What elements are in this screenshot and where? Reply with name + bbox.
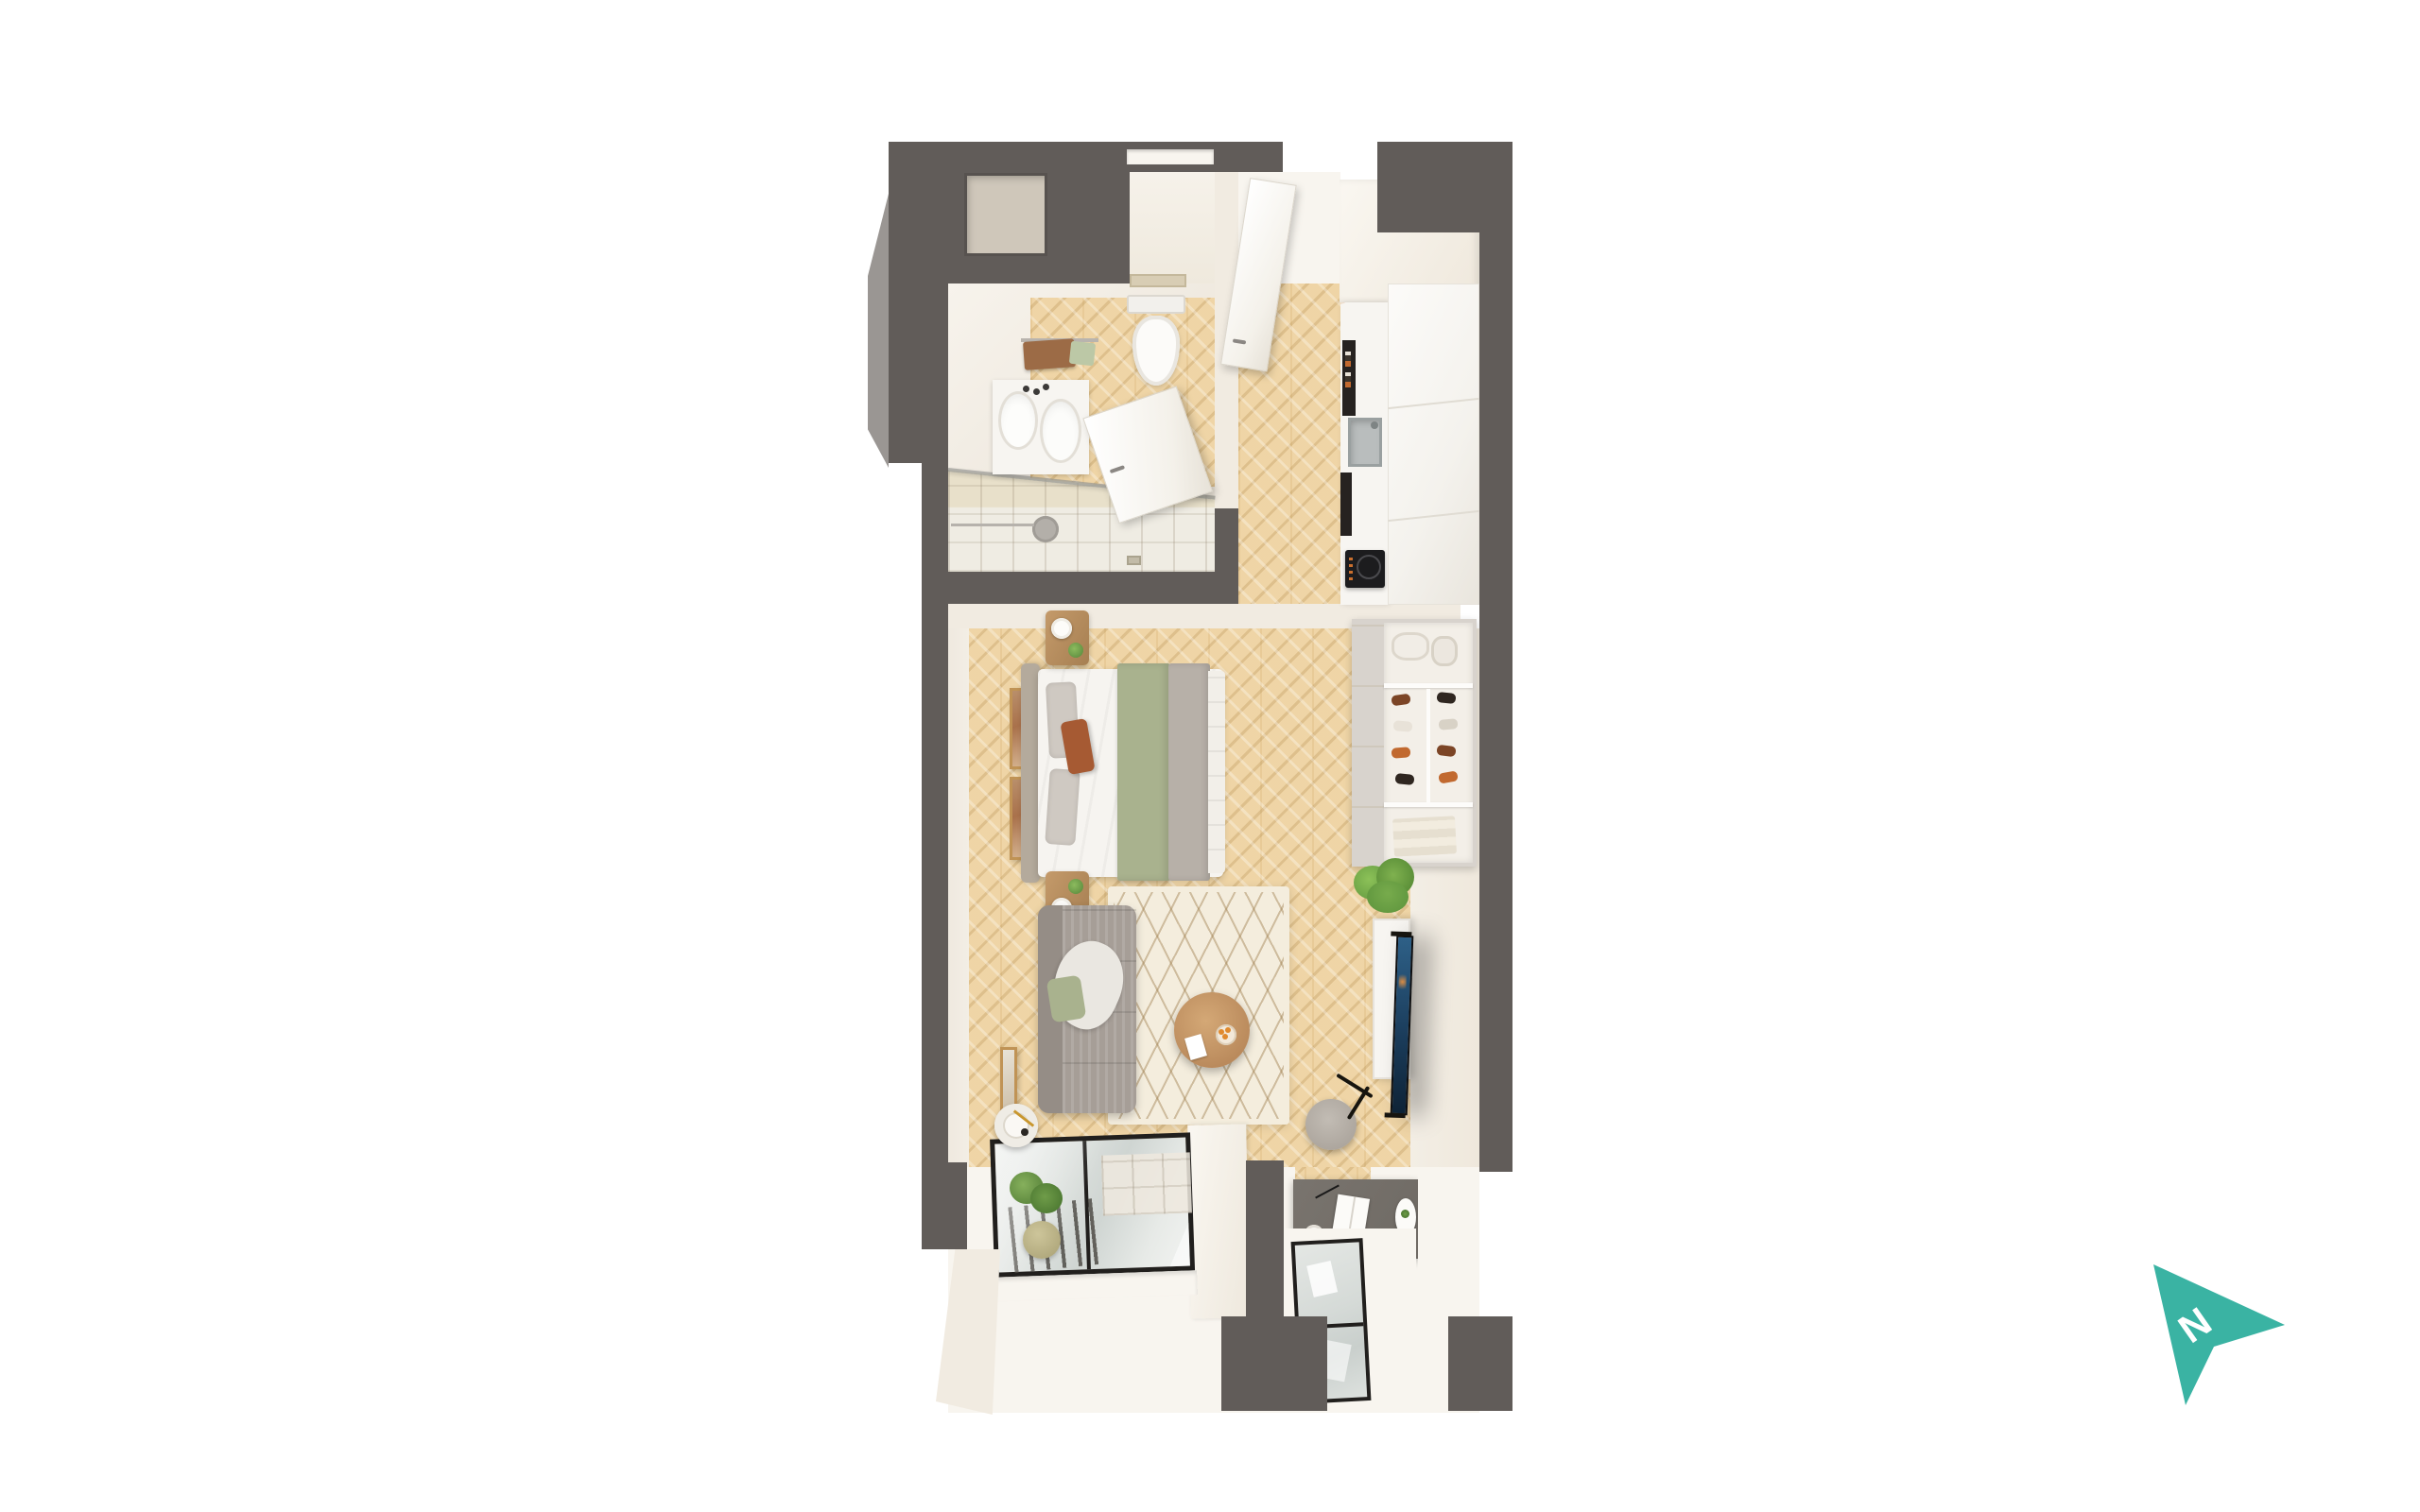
wall [1479,227,1512,1172]
kitchen-tall-cabinets [1388,283,1479,605]
wall [889,142,948,463]
pillow [1045,768,1080,846]
toilet-nook-floor [1130,172,1215,283]
floor-plan-render: N [0,0,2420,1512]
wall-niche [1127,149,1214,164]
wardrobe-shelf [1384,802,1473,807]
brown-towel [1023,338,1076,370]
north-arrow: N [2146,1257,2292,1408]
wall [922,1162,967,1249]
sofa-pillow [1046,974,1087,1022]
wall [922,572,1238,604]
floor-lamp [994,1104,1038,1147]
wall [1448,1316,1512,1411]
wall [1246,1160,1284,1319]
shoe [1436,692,1456,704]
quilted-mattress-end [1208,671,1225,873]
shower-drain [1127,556,1141,565]
extractor-vent [1130,274,1186,287]
wardrobe-drawers [1352,619,1384,867]
shower-rail [951,524,1034,526]
coffee-table [1174,992,1250,1068]
shoe [1439,718,1459,730]
wall-bevel [868,194,889,468]
pen [1315,1185,1340,1199]
bed-headboard [1021,663,1040,883]
shoe [1391,747,1411,758]
green-throw [1117,663,1170,881]
pendant-lamp [1023,1221,1061,1259]
shoe-rack-divider [1426,689,1430,802]
basin-taps [1023,386,1047,395]
wardrobe-shelves [1384,623,1473,863]
shoe [1438,770,1459,783]
small-plant [1068,879,1083,894]
toilet-cistern [1127,295,1185,314]
table-lamp [1051,618,1072,639]
hanging-plant [1010,1172,1066,1225]
induction-hob [1345,550,1385,588]
left-wall-inner-face [948,628,969,1167]
wall [1377,142,1512,232]
linen-roll [1391,632,1429,661]
wall [1221,1316,1327,1411]
service-shaft [964,173,1047,256]
open-shelf-items [1342,340,1356,416]
gray-blanket [1168,663,1210,881]
appliance-niche [1340,472,1352,536]
green-towel [1069,341,1096,367]
desk-stool [1305,1099,1357,1150]
open-wardrobe [1352,619,1477,867]
shower-head [1032,516,1059,542]
nightstand [1046,610,1089,665]
wardrobe-shelf [1384,683,1473,688]
shoe [1391,694,1410,707]
shoe [1393,720,1413,732]
folded-towels [1392,816,1457,856]
fruit-plate [1216,1024,1236,1045]
apartment-plan [889,142,1512,1413]
kitchen-sink [1348,418,1382,467]
shoe [1394,773,1414,785]
potted-fern [1350,858,1418,917]
shoe [1436,745,1456,757]
window-sill [1418,1167,1479,1318]
wall-face [936,1249,1000,1415]
north-arrow-shape [2153,1264,2285,1405]
small-plant [1068,643,1083,658]
wall [922,463,948,1162]
glass-reflection-tiles [1101,1152,1192,1215]
glass-reflection [1306,1261,1338,1297]
linen-roll [1431,636,1458,666]
photo-card [1184,1034,1207,1060]
